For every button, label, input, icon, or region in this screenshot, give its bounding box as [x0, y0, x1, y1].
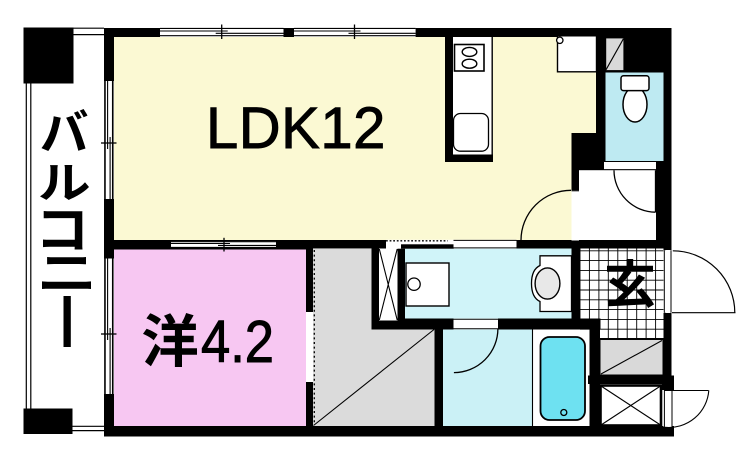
svg-text:4.2: 4.2 [201, 309, 274, 375]
svg-text:LDK12: LDK12 [206, 96, 386, 161]
